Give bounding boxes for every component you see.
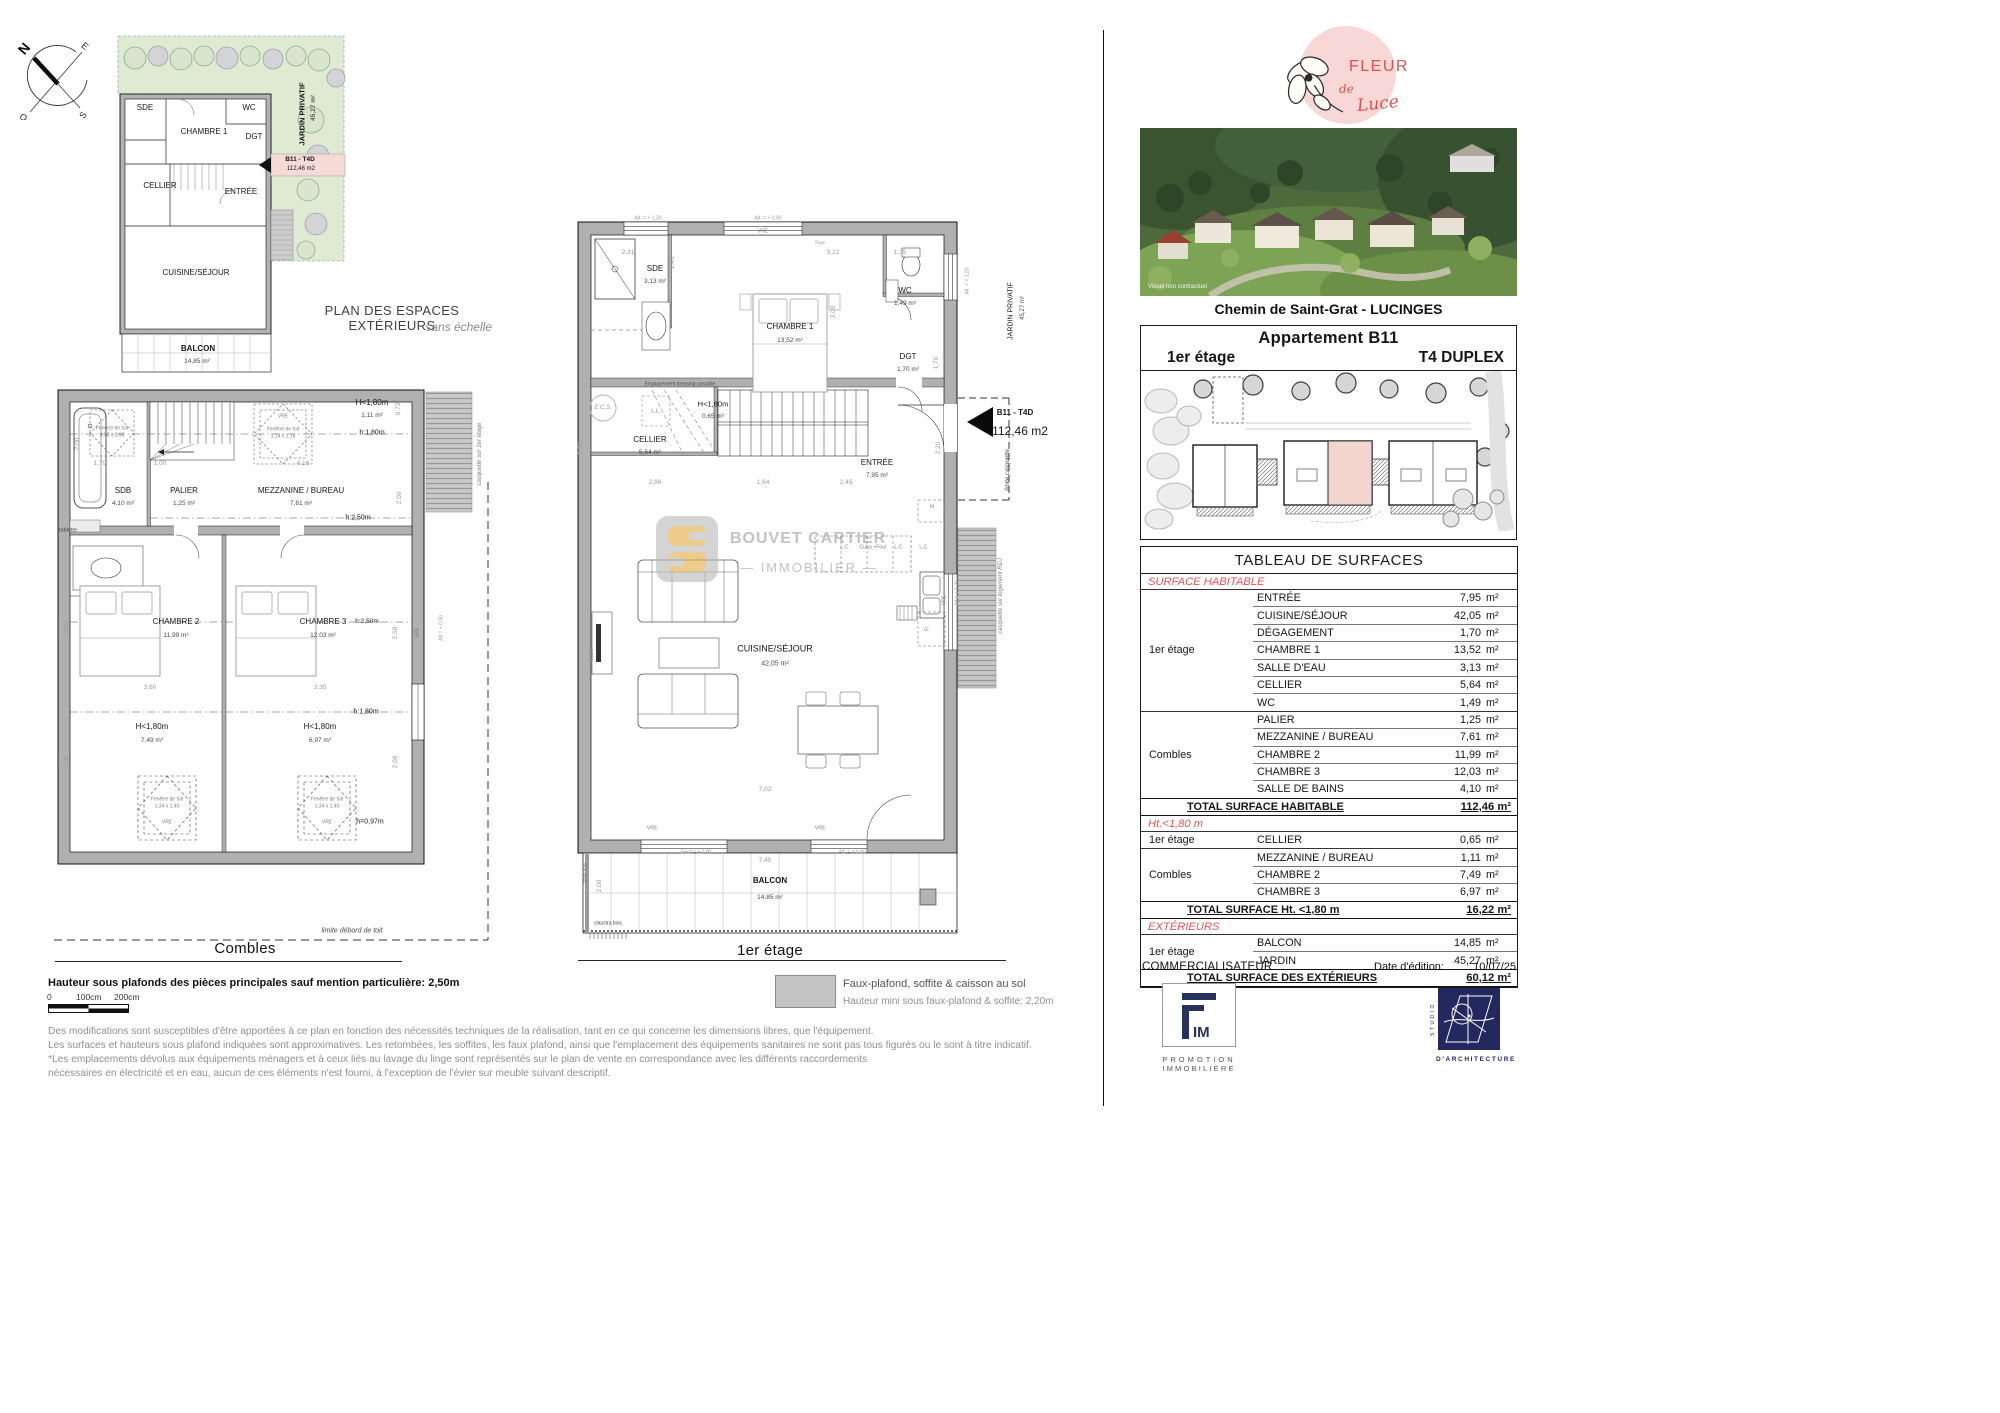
logo-text-fleur: FLEUR	[1349, 58, 1409, 76]
surface-unit: m²	[1483, 694, 1517, 711]
plan-label: Fenêtre de toit	[311, 798, 343, 803]
surface-room: CHAMBRE 2	[1253, 866, 1427, 883]
plan-label: JARDIN PRIVATIF	[1008, 282, 1015, 340]
plan-label: DGT	[246, 133, 263, 141]
surface-val: 7,49	[1427, 866, 1483, 883]
surface-room: SALLE DE BAINS	[1253, 781, 1427, 798]
plan-label: 1,79	[94, 461, 107, 468]
plan-label: L.C.	[894, 546, 903, 551]
surface-table: SURFACE HABITABLE1er étageENTRÉE7,95m²CU…	[1141, 574, 1517, 987]
ceiling-height-note: Hauteur sous plafonds des pièces princip…	[48, 977, 459, 989]
etage-caption: 1er étage	[690, 942, 850, 959]
surface-total: 112,46 m²	[1427, 798, 1517, 815]
exterior-plan-subcaption: sans échelle	[288, 320, 492, 334]
photo-illustration	[1140, 128, 1517, 296]
plan-label: 0,65 m²	[702, 414, 724, 421]
plan-label: h:2,50m	[345, 515, 370, 522]
surface-val: 13,52	[1427, 642, 1483, 659]
logo-text-luce: Luce	[1356, 92, 1400, 116]
plan-label: 1,14 x 1,18	[271, 435, 296, 440]
surface-val: 3,13	[1427, 659, 1483, 676]
studio-vertical-text: STUDIO	[1430, 1002, 1436, 1036]
plan-label: VRE	[416, 628, 421, 638]
surface-val: 1,49	[1427, 694, 1483, 711]
plan-label: CUISINE/SÉJOUR	[162, 269, 229, 277]
surface-unit: m²	[1483, 711, 1517, 728]
plan-label: PALIER	[170, 487, 198, 495]
surface-table-title: TABLEAU DE SURFACES	[1141, 547, 1517, 574]
plan-label: 2,20	[936, 442, 943, 455]
plan-label: CUISINE/SÉJOUR	[737, 645, 813, 654]
plan-label: 1,35	[894, 250, 907, 257]
surface-section-header: SURFACE HABITABLE	[1141, 574, 1517, 590]
surface-group: 1er étage	[1141, 590, 1253, 712]
plan-label: 45,27 m²	[311, 95, 318, 121]
plan-label: BALCON	[753, 877, 787, 885]
site-plan	[1141, 371, 1515, 531]
plan-label: limite casquette	[1005, 449, 1011, 491]
plan-label: 2,08	[64, 756, 71, 769]
plan-label: DGT	[900, 353, 917, 361]
photo-caption: Visuel non contractuel	[1148, 284, 1207, 290]
plan-label: 14,85 m²	[757, 895, 783, 902]
plan-label: Pl	[930, 506, 934, 511]
plan-label: tablette	[59, 528, 77, 534]
commercialisateur-label: COMMERCIALISATEUR	[1142, 961, 1272, 973]
surface-unit: m²	[1483, 884, 1517, 901]
plan-label: MEZZANINE / BUREAU	[258, 487, 344, 495]
surface-val: 4,10	[1427, 781, 1483, 798]
plan-label: 112,46 m2	[992, 425, 1048, 437]
plan-label: 7,45	[759, 858, 772, 865]
fim-sub2: IMMOBILIÈRE	[1144, 1064, 1254, 1073]
plan-label: casquette sur logement RDJ	[998, 558, 1004, 634]
plan-label: Alt = + 1,20	[956, 580, 961, 606]
plan-label: 6,97 m²	[309, 738, 331, 745]
surface-room: WC	[1253, 694, 1427, 711]
surface-room: ENTRÉE	[1253, 590, 1427, 607]
plan-label: Alt = + 0,90	[440, 615, 445, 641]
watermark: BOUVET CARTIER — IMMOBILIER —	[656, 516, 926, 596]
surface-val: 6,97	[1427, 884, 1483, 901]
surface-unit: m²	[1483, 590, 1517, 607]
compass-s: S	[77, 109, 89, 120]
plan-label: 1,34 x 1,40	[155, 805, 180, 810]
surface-group: Combles	[1141, 711, 1253, 798]
plan-label: Alt. = + 0,90	[755, 217, 782, 222]
combles-caption-rule	[55, 961, 402, 962]
plan-label: Alt. = + 1,20	[635, 217, 662, 222]
mini-ext-stairs	[271, 210, 293, 260]
plan-label: 7,95 m²	[866, 473, 888, 480]
project-address: Chemin de Saint-Grat - LUCINGES	[1140, 301, 1517, 317]
column-divider	[1103, 30, 1104, 1106]
plan-label: 3,00	[831, 306, 838, 319]
plan-label: 45,27 m²	[1020, 296, 1026, 320]
plan-label: CHAMBRE 3	[300, 618, 347, 626]
plan-label: h=0,97m	[356, 819, 383, 826]
disclaimer-line2: Les surfaces et hauteurs sous plafond in…	[48, 1040, 1032, 1051]
combles-caption: Combles	[150, 940, 340, 957]
plan-label: 6,20	[589, 649, 596, 662]
plan-label: CELLIER	[143, 182, 176, 190]
plan-label: 2,00	[75, 438, 82, 451]
plan-label: 7,61 m²	[290, 501, 312, 508]
plan-label: L.C.	[919, 546, 928, 551]
surface-val: 1,25	[1427, 711, 1483, 728]
surface-unit: m²	[1483, 849, 1517, 866]
surface-total: TOTAL SURFACE Ht. <1,80 m	[1141, 901, 1427, 918]
legend-swatch	[775, 975, 836, 1008]
plan-label: 42,05 m²	[761, 661, 789, 668]
plan-label: VRE	[943, 595, 948, 605]
plan-label: 7,02	[759, 787, 772, 794]
surface-val: 5,64	[1427, 676, 1483, 693]
surface-section-header: EXTÉRIEURS	[1141, 919, 1517, 935]
plan-label: 1,49 m²	[894, 301, 916, 308]
scale-label-0: 0	[47, 992, 52, 1002]
surface-group: Combles	[1141, 849, 1253, 901]
surface-total: TOTAL SURFACE HABITABLE	[1141, 798, 1427, 815]
surface-unit: m²	[1483, 832, 1517, 849]
plan-label: Alt. = ± 0,90	[839, 851, 866, 856]
plan-label: 4,16	[297, 461, 310, 468]
fim-sub1: PROMOTION	[1144, 1055, 1254, 1064]
plan-label: Seuil = ± 0,00	[681, 851, 712, 856]
plan-label: H<1,80m	[698, 400, 729, 408]
project-photo: Visuel non contractuel	[1140, 128, 1517, 296]
plan-label: claustra bois	[594, 922, 622, 927]
plan-label: limite débord de toit	[321, 928, 382, 935]
compass-rose: N E S O	[16, 36, 96, 120]
plan-label: Cuiss.+Four	[859, 546, 886, 551]
plan-label: CHAMBRE 1	[767, 323, 814, 331]
watermark-logo	[656, 516, 718, 582]
plan-label: L.C.	[840, 546, 849, 551]
plan-label: CELLIER	[633, 436, 666, 444]
plan-label: WC	[898, 287, 911, 295]
plan-label: h:2,50m	[355, 619, 379, 626]
surface-room: SALLE D'EAU	[1253, 659, 1427, 676]
plan-label: h:1,80m	[359, 430, 384, 437]
plan-label: 112,46 m2	[287, 166, 315, 172]
surface-unit: m²	[1483, 935, 1517, 952]
plan-label: B11 - T4D	[285, 157, 315, 164]
plan-label: 2,59	[393, 627, 400, 640]
plan-label: Fr.	[926, 625, 931, 631]
surface-room: MEZZANINE / BUREAU	[1253, 849, 1427, 866]
surface-unit: m²	[1483, 729, 1517, 746]
plan-label: 2,08	[393, 756, 400, 769]
plan-label: ENTRÉE	[861, 459, 893, 467]
surface-val: 11,99	[1427, 746, 1483, 763]
disclaimer-line1: Des modifications sont susceptibles d'êt…	[48, 1026, 874, 1037]
legend-line1: Faux-plafond, soffite & caisson au sol	[843, 978, 1026, 990]
studio-bottom-text: D'ARCHITECTURE	[1434, 1056, 1518, 1063]
plan-label: 0,78 x 0,98	[100, 434, 125, 439]
plan-label: Alt. = + 1,20	[966, 268, 971, 295]
surface-room: CHAMBRE 3	[1253, 763, 1427, 780]
plan-label: H<1,80m	[356, 399, 389, 407]
combles-drawing	[46, 386, 498, 974]
plan-label: 1,00	[154, 461, 167, 468]
plan-label: VRE	[758, 230, 768, 235]
plan-label: VRE	[322, 821, 332, 826]
plan-label: 2,31	[622, 250, 635, 257]
plan-label: 1,43	[670, 257, 677, 270]
plan-label: 2,86	[649, 480, 662, 487]
plan-label: Fenêtre de toit	[151, 798, 183, 803]
unit-info-box: Appartement B11 1er étage T4 DUPLEX	[1140, 325, 1517, 540]
plan-label: BALCON	[181, 345, 215, 353]
disclaimer-line4: nécessaires en électricité et en eau, au…	[48, 1068, 611, 1079]
plan-label: B11 - T4D	[997, 409, 1033, 417]
logo-text-de: de	[1339, 82, 1354, 96]
plan-label: 4,10 m²	[112, 501, 134, 508]
date-edition-label: Date d'édition:	[1374, 961, 1444, 973]
surface-unit: m²	[1483, 781, 1517, 798]
plan-label: H<1,80m	[304, 723, 337, 731]
date-edition-value: 10/07/25	[1473, 961, 1516, 973]
plan-label: VRE	[278, 415, 288, 420]
plan-label: Fenêtre de toit	[267, 428, 299, 433]
fleur-de-luce-logo: FLEUR de Luce	[1265, 20, 1435, 130]
unit-floor: 1er étage	[1167, 349, 1235, 367]
plan-label: SDB	[115, 487, 131, 495]
fim-logo: IM PROMOTION IMMOBILIÈRE	[1144, 983, 1254, 1073]
unit-title: Appartement B11	[1141, 326, 1516, 348]
disclaimer-line3: *Les emplacements dévolus aux équipement…	[48, 1054, 867, 1065]
plan-label: 1,64	[757, 480, 770, 487]
surface-room: BALCON	[1253, 935, 1427, 952]
surface-val: 42,05	[1427, 607, 1483, 624]
plan-label: 1,25 m²	[173, 501, 195, 508]
surface-room: CELLIER	[1253, 676, 1427, 693]
plan-label: casquette sur 1er étage	[477, 422, 483, 485]
page: N E S O	[0, 0, 2000, 1413]
compass-n: N	[16, 40, 33, 58]
surface-room: CELLIER	[1253, 832, 1427, 849]
surface-unit: m²	[1483, 624, 1517, 641]
plan-label: Fixe	[815, 242, 824, 247]
surface-unit: m²	[1483, 746, 1517, 763]
plan-label: SDE	[137, 104, 153, 112]
surface-unit: m²	[1483, 659, 1517, 676]
legend-line2: Hauteur mini sous faux-plafond & soffite…	[843, 996, 1053, 1007]
ext-stair-hatch	[958, 528, 996, 688]
plan-label: 2,45	[840, 480, 853, 487]
surface-section-header: Ht.<1,80 m	[1141, 816, 1517, 832]
plan-label: 3,22	[827, 250, 840, 257]
plan-label: pare-vue	[584, 863, 589, 883]
plan-label: 0,73	[396, 403, 403, 416]
plan-label: SDE	[647, 265, 663, 273]
surface-val: 0,65	[1427, 832, 1483, 849]
plan-label: 1,70	[934, 357, 941, 370]
surface-unit: m²	[1483, 607, 1517, 624]
plan-label: WC	[242, 104, 255, 112]
unit-type: T4 DUPLEX	[1419, 349, 1504, 367]
plan-label: 3,13 m²	[644, 279, 666, 286]
plan-label: 14,85 m²	[184, 359, 210, 366]
plan-label: JARDIN PRIVATIF	[298, 82, 306, 145]
surface-val: 14,85	[1427, 935, 1483, 952]
plan-label: h:1,80m	[353, 709, 378, 716]
surface-total: 16,22 m²	[1427, 901, 1517, 918]
plan-label: 3,35	[314, 685, 327, 692]
mini-balcony	[122, 334, 271, 372]
plan-label: 12,03 m²	[310, 633, 336, 640]
svg-text:IM: IM	[1193, 1024, 1210, 1041]
plan-label: Fenêtre de toit	[96, 427, 128, 432]
surface-room: PALIER	[1253, 711, 1427, 728]
plan-label: VRE	[815, 827, 825, 832]
surface-unit: m²	[1483, 676, 1517, 693]
plan-label: 11,99 m²	[163, 633, 188, 640]
surface-unit: m²	[1483, 642, 1517, 659]
surface-room: CHAMBRE 1	[1253, 642, 1427, 659]
combles-stairs	[150, 402, 234, 460]
scale-label-100: 100cm	[76, 992, 102, 1002]
plan-label: ENTRÉE	[225, 188, 257, 196]
plan-label: VRE	[162, 821, 172, 826]
plan-label: 1,70 m²	[897, 367, 919, 374]
scale-label-200: 200cm	[114, 992, 140, 1002]
etage-caption-rule	[578, 960, 1006, 961]
watermark-line2: — IMMOBILIER —	[740, 560, 878, 575]
plan-label: 5,64 m²	[639, 450, 661, 457]
surface-room: CHAMBRE 3	[1253, 884, 1427, 901]
surface-unit: m²	[1483, 866, 1517, 883]
plan-label: E.C.S.	[594, 405, 611, 411]
studio-logo-icon	[1438, 988, 1500, 1050]
plan-label: VRE	[647, 827, 657, 832]
studio-architecture-logo: STUDIO D'ARCHITECTURE	[1424, 986, 1518, 1063]
floor-plan-combles: H<1,80m1,11 m²0,73h:1,80mFenêtre de toit…	[46, 386, 498, 974]
plan-label: CHAMBRE 2	[153, 618, 200, 626]
scale-bar	[48, 1004, 130, 1014]
plan-label: H<1,80m	[136, 723, 169, 731]
fim-logo-icon: IM	[1162, 983, 1236, 1047]
surface-room: CUISINE/SÉJOUR	[1253, 607, 1427, 624]
surface-val: 7,61	[1427, 729, 1483, 746]
plan-label: 13,52 m²	[777, 338, 803, 345]
plan-label: 7,49 m²	[141, 738, 163, 745]
surface-val: 1,70	[1427, 624, 1483, 641]
plan-label: 3,60	[144, 685, 157, 692]
floor-plan-1er-etage: BOUVET CARTIER — IMMOBILIER — Alt. = + 1…	[568, 208, 1068, 980]
surface-unit: m²	[1483, 763, 1517, 780]
surface-val: 7,95	[1427, 590, 1483, 607]
entry-arrow	[967, 407, 993, 437]
surface-group: 1er étage	[1141, 832, 1253, 849]
plan-label: Emplacement dressing possible	[645, 383, 716, 388]
plan-label: CHAMBRE 1	[181, 128, 228, 136]
surface-room: CHAMBRE 2	[1253, 746, 1427, 763]
plan-label: 2,00	[597, 880, 604, 893]
compass-e: E	[79, 40, 90, 52]
plan-label: 2,00	[397, 492, 404, 505]
surface-val: 1,11	[1427, 849, 1483, 866]
surface-room: DÉGAGEMENT	[1253, 624, 1427, 641]
surface-table-box: TABLEAU DE SURFACES SURFACE HABITABLE1er…	[1140, 546, 1518, 988]
plan-label: L.L.	[651, 409, 660, 415]
plan-label: 1,11 m²	[361, 413, 383, 420]
compass-o: O	[17, 111, 29, 120]
surface-room: MEZZANINE / BUREAU	[1253, 729, 1427, 746]
surface-val: 12,03	[1427, 763, 1483, 780]
plan-label: 2,20	[578, 442, 585, 455]
plan-label: 1,34 x 1,40	[315, 805, 340, 810]
plan-label: 3,09	[64, 622, 71, 635]
